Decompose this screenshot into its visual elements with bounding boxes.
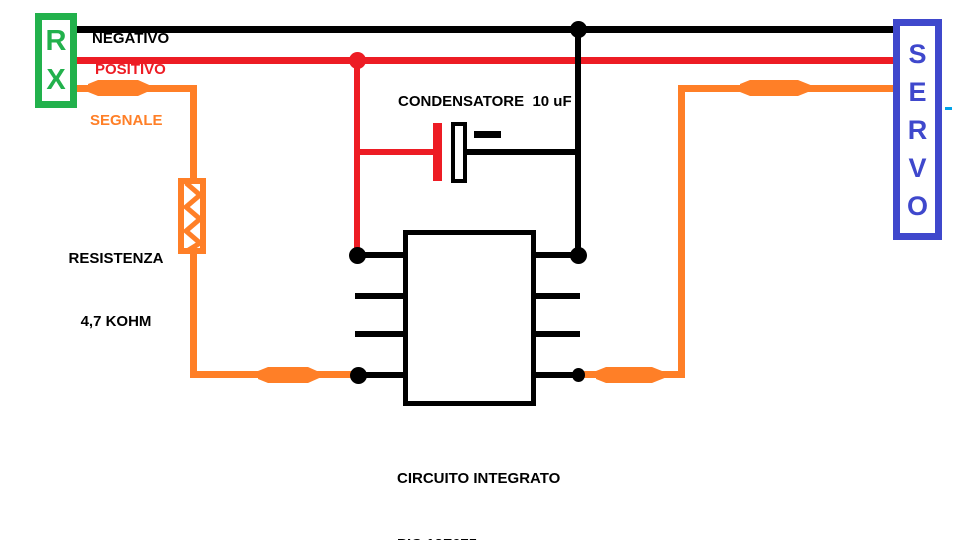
junction-dot-pin8 [570,247,587,264]
capacitor-positive-plate [433,123,442,181]
signal-wire-label: SEGNALE [90,113,163,130]
ic-label: CIRCUITO INTEGRATO PIC 12F675 [397,424,560,540]
signal-wire-left-vertical-lower [190,253,197,378]
resistor-symbol [178,178,206,254]
negative-branch-to-capacitor [464,149,578,155]
positive-branch-vertical [354,60,360,255]
servo-letter-v: V [908,149,926,187]
junction-dot-positive [349,52,366,69]
ic-label-line1: CIRCUITO INTEGRATO [397,468,560,490]
capacitor-negative-plate [451,122,467,183]
stray-mark [945,107,952,110]
junction-dot-pin5 [572,368,585,382]
circuit-diagram-canvas: CONDENSATORE 10 uF RESISTENZA 4,7 KOHM 1… [0,0,960,540]
ic-pin2-lead [355,293,403,299]
resistor-label-line1: RESISTENZA [60,248,172,269]
positive-branch-to-capacitor [355,149,435,155]
capacitor-label: CONDENSATORE 10 uF [398,94,572,111]
rx-receiver-box: R X [35,13,77,108]
capacitor-polarity-mark [474,131,501,138]
positive-wire-label: POSITIVO [95,62,166,79]
ic-label-line2: PIC 12F675 [397,534,560,540]
negative-wire [77,26,894,33]
junction-dot-negative-top [570,21,587,38]
servo-box: S E R V O [893,19,942,240]
signal-out-top-segment [678,85,893,92]
signal-wire-left-vertical-upper [190,85,197,178]
negative-wire-label: NEGATIVO [92,31,169,48]
servo-letter-e: E [908,73,926,111]
resistor-label-line2: 4,7 KOHM [60,311,172,332]
resistor-label: RESISTENZA 4,7 KOHM [60,206,172,374]
junction-dot-pin1 [349,247,366,264]
signal-wire-rx-segment [77,85,197,92]
signal-wire-bottom-segment [190,371,360,378]
junction-dot-pin4 [350,367,367,384]
negative-branch-vertical [575,29,581,255]
ic-pin7-lead [536,293,580,299]
servo-letter-r: R [908,111,928,149]
rx-letter-r: R [46,22,67,61]
signal-out-vertical [678,88,685,378]
ic-pin3-lead [355,331,403,337]
ic-pin6-lead [536,331,580,337]
servo-letter-o: O [907,187,928,225]
ic-chip-body [403,230,536,406]
rx-letter-x: X [46,61,65,100]
servo-letter-s: S [908,35,926,73]
positive-wire [77,57,894,64]
signal-out-wire-bottom [580,371,685,378]
